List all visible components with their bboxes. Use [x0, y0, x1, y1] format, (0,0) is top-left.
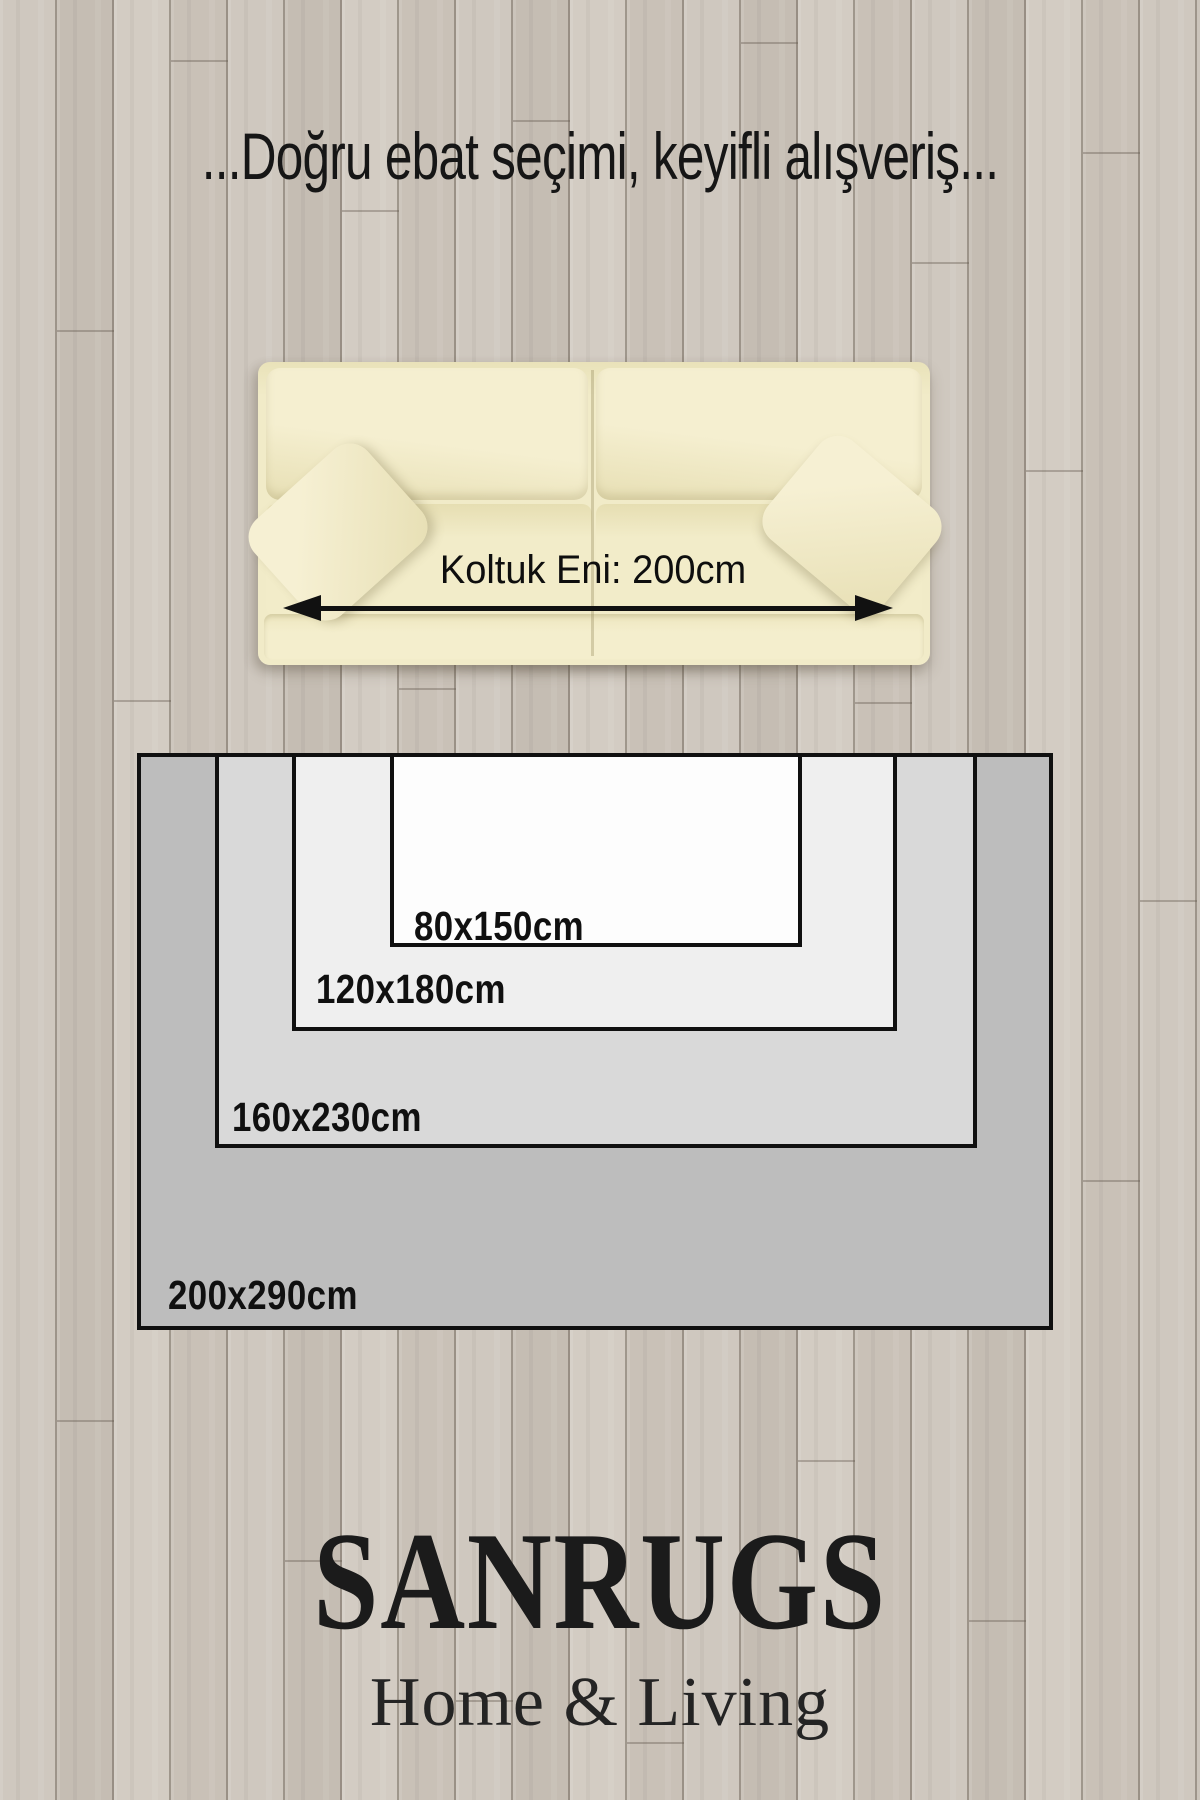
plank-joint — [57, 330, 114, 332]
plank-joint — [57, 1420, 114, 1422]
plank-joint — [855, 702, 912, 704]
page-title: ...Doğru ebat seçimi, keyifli alışveriş.… — [150, 118, 1050, 194]
brand-tagline: Home & Living — [0, 1668, 1200, 1738]
arrow-right-head-icon — [855, 595, 893, 621]
plank-joint — [912, 262, 969, 264]
sofa-width-label: Koltuk Eni: 200cm — [350, 548, 836, 593]
plank-joint — [798, 1460, 855, 1462]
plank-joint — [1140, 900, 1197, 902]
plank-joint — [741, 42, 798, 44]
rug-size-label-200x290: 200x290cm — [168, 1272, 358, 1319]
plank-joint — [171, 60, 228, 62]
rug-size-label-80x150: 80x150cm — [414, 903, 584, 950]
arrow-shaft — [305, 606, 871, 611]
rug-size-guide: ...Doğru ebat seçimi, keyifli alışveriş.… — [0, 0, 1200, 1800]
brand-logo: SANRUGS — [96, 1512, 1104, 1652]
plank-joint — [342, 210, 399, 212]
plank-joint — [1026, 470, 1083, 472]
plank-joint — [114, 700, 171, 702]
plank-joint — [1083, 1180, 1140, 1182]
plank-joint — [627, 1742, 684, 1744]
plank-joint — [1083, 152, 1140, 154]
sofa-width-arrow — [283, 595, 893, 621]
rug-size-label-120x180: 120x180cm — [316, 966, 506, 1013]
rug-size-label-160x230: 160x230cm — [232, 1094, 422, 1141]
plank-joint — [399, 688, 456, 690]
